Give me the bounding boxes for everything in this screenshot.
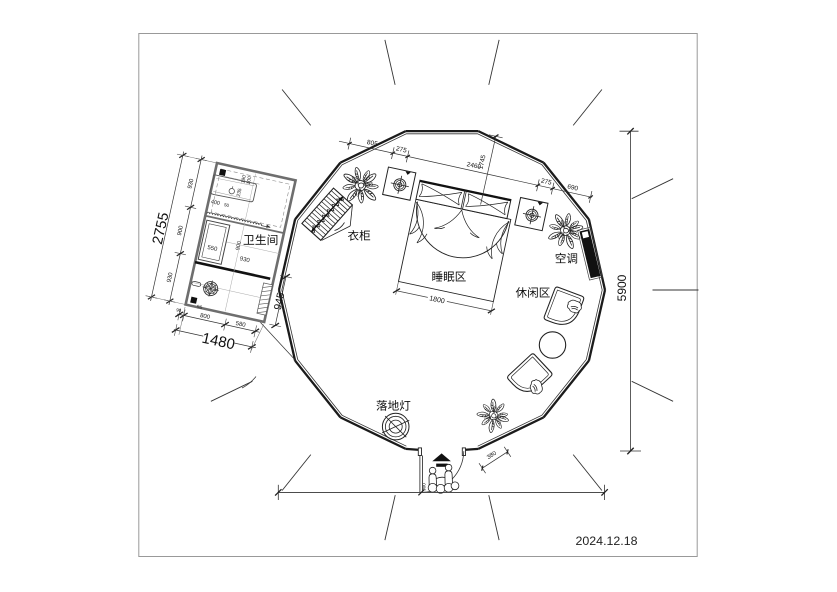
svg-text:2024.12.18: 2024.12.18	[576, 534, 638, 548]
svg-text:5900: 5900	[615, 274, 629, 301]
svg-text:900: 900	[421, 483, 426, 491]
